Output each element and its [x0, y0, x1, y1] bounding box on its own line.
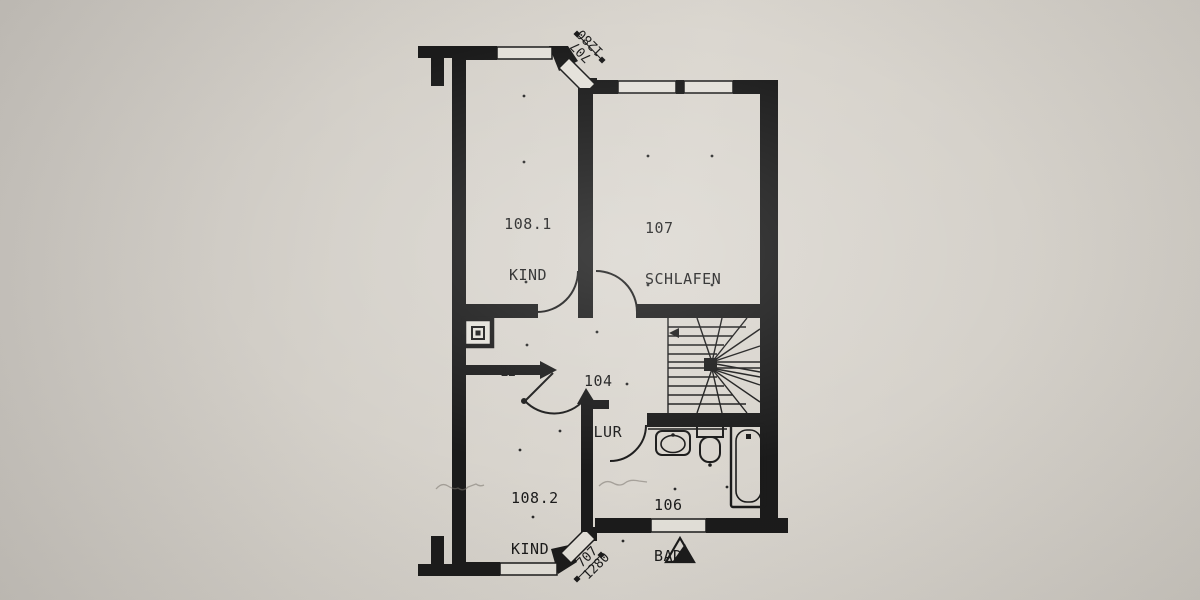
- door-arc-107: [596, 271, 637, 312]
- room-name: KIND: [511, 541, 559, 558]
- room-label-107: 107 SCHLAFEN: [645, 186, 721, 322]
- room-name: FLUR: [584, 424, 622, 441]
- floorplan-photo: 108.1 KIND 107 SCHLAFEN 104 FLUR 108.2 K…: [0, 0, 1200, 600]
- room-label-104: 104 FLUR: [584, 339, 622, 475]
- room-label-108-1: 108.1 KIND: [478, 182, 578, 318]
- room-label-106: 106 BAD: [654, 463, 692, 599]
- room-label-108-2: 108.2 KIND: [511, 456, 559, 592]
- door-leaf-108-2: [525, 373, 553, 401]
- stair-newel: [704, 358, 717, 371]
- room-name: BAD: [654, 548, 692, 565]
- room-number: 108.2: [511, 490, 559, 507]
- window-107-b: [684, 81, 733, 93]
- room-number: 108.1: [478, 216, 578, 233]
- door-hinge-dot: [522, 399, 526, 403]
- room-name: SCHLAFEN: [645, 271, 721, 288]
- room-name: KIND: [478, 267, 578, 284]
- toilet: [697, 425, 723, 467]
- floorplan-linework: [0, 0, 1200, 600]
- bathtub: [731, 425, 765, 507]
- window-108-1: [497, 47, 552, 59]
- window-107-a: [618, 81, 676, 93]
- door-arc-108-2: [525, 400, 584, 413]
- room-number: 104: [584, 373, 622, 390]
- staircase: [668, 318, 760, 413]
- room-number: 106: [654, 497, 692, 514]
- shaft-symbol: [464, 319, 492, 346]
- room-number: 107: [645, 220, 721, 237]
- washbasin: [656, 431, 690, 455]
- shaft-label: 12: [469, 347, 516, 398]
